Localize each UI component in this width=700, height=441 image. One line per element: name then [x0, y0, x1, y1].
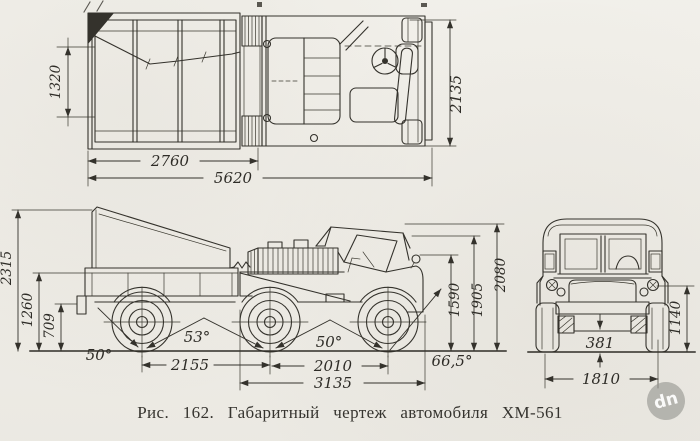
- dim-cab-height: 1905: [470, 283, 486, 317]
- dim-bed-height: 1260: [20, 292, 36, 327]
- dim-rear-axle-spacing: 2155: [170, 356, 209, 374]
- watermark-label: dn: [652, 388, 681, 414]
- dim-windshield-height: 1590: [447, 282, 463, 317]
- angle-rear-breakover: 53°: [184, 328, 211, 346]
- print-artifacts: [84, 1, 427, 12]
- dim-overall-width: 2135: [447, 75, 465, 114]
- dim-headlight-height: 1140: [668, 300, 684, 335]
- side-view-wheels: [104, 287, 426, 357]
- front-view-dimensions: 381 1810 1140: [545, 286, 694, 388]
- dim-overall-height: 2315: [0, 251, 15, 286]
- front-view: 381 1810 1140: [528, 219, 695, 388]
- dim-track-width: 1810: [582, 370, 621, 388]
- dimensional-drawing: 1320 2760 5620 2135: [0, 0, 700, 400]
- dim-hitch-height: 709: [42, 313, 58, 339]
- top-view-articulation: [242, 16, 262, 146]
- top-view-tractor: [262, 16, 432, 146]
- dim-ground-clearance: 381: [586, 334, 615, 352]
- middle-wheel: [232, 287, 308, 357]
- top-view-dimensions: 1320 2760 5620 2135: [48, 20, 465, 187]
- side-view-left-dimensions: 2315 1260 709: [0, 210, 92, 351]
- side-view-angles: 50° 53° 50° 66,5°: [86, 289, 473, 370]
- carrier-wheel: [104, 287, 180, 357]
- dim-wheelbase: 2010: [313, 357, 353, 375]
- scanned-page: { "caption": "Рис. 162. Габаритный черте…: [0, 0, 700, 441]
- dim-overall-length: 5620: [214, 169, 253, 187]
- side-view: 50° 53° 50° 66,5° 2315 1260 709: [0, 207, 509, 392]
- dim-inner-width: 1320: [48, 64, 64, 99]
- top-view: 1320 2760 5620 2135: [48, 13, 465, 187]
- side-view-tractor: [240, 227, 423, 312]
- side-view-right-dimensions: 1590 1905 2080: [405, 224, 509, 351]
- side-view-carrier: [77, 207, 250, 314]
- figure-caption: Рис. 162. Габаритный чертеж автомобиля Х…: [0, 403, 700, 423]
- front-wheel: [350, 287, 426, 357]
- angle-approach: 66,5°: [432, 352, 473, 370]
- angle-departure: 50°: [86, 346, 113, 364]
- dim-front-unit-length: 3135: [314, 374, 352, 392]
- top-view-carrier: [88, 13, 240, 149]
- angle-front-breakover: 50°: [316, 333, 343, 351]
- dim-trailer-length: 2760: [150, 152, 190, 170]
- dim-canvas-height: 2080: [493, 257, 509, 293]
- front-view-body: [536, 219, 669, 352]
